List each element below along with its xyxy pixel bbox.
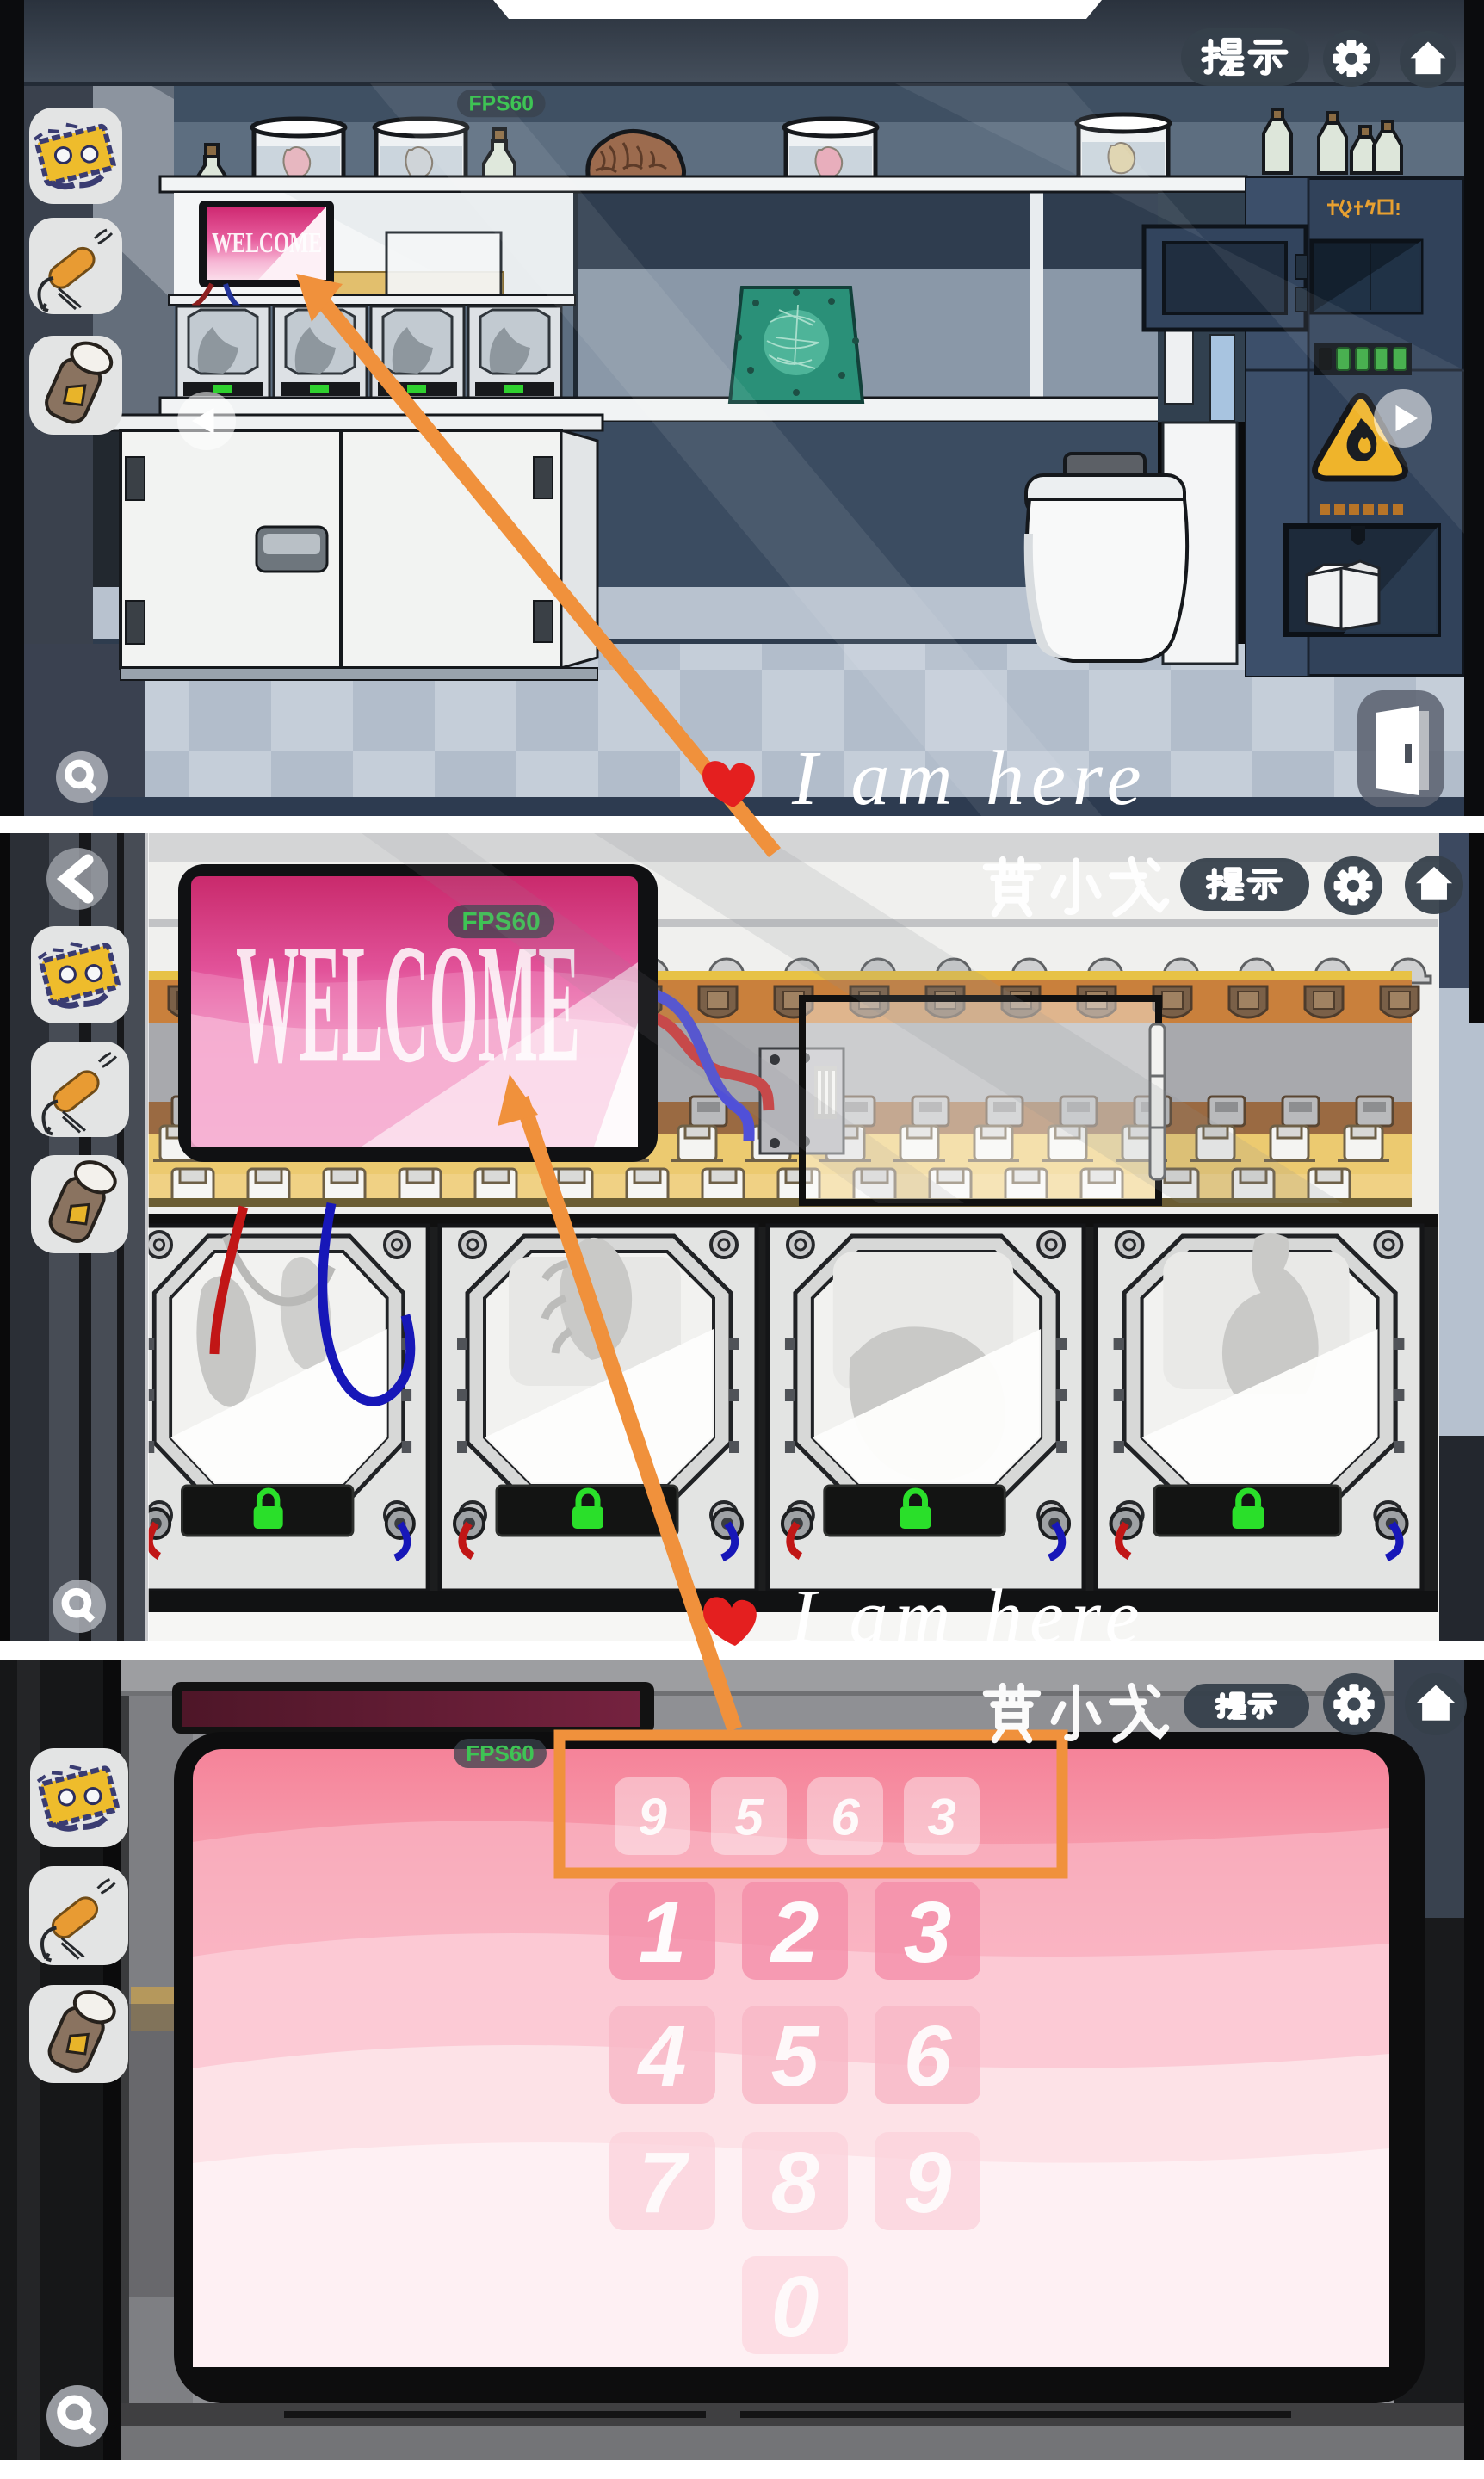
svg-text:I am here: I am here [789,1574,1147,1660]
svg-text:I am here: I am here [791,736,1148,821]
